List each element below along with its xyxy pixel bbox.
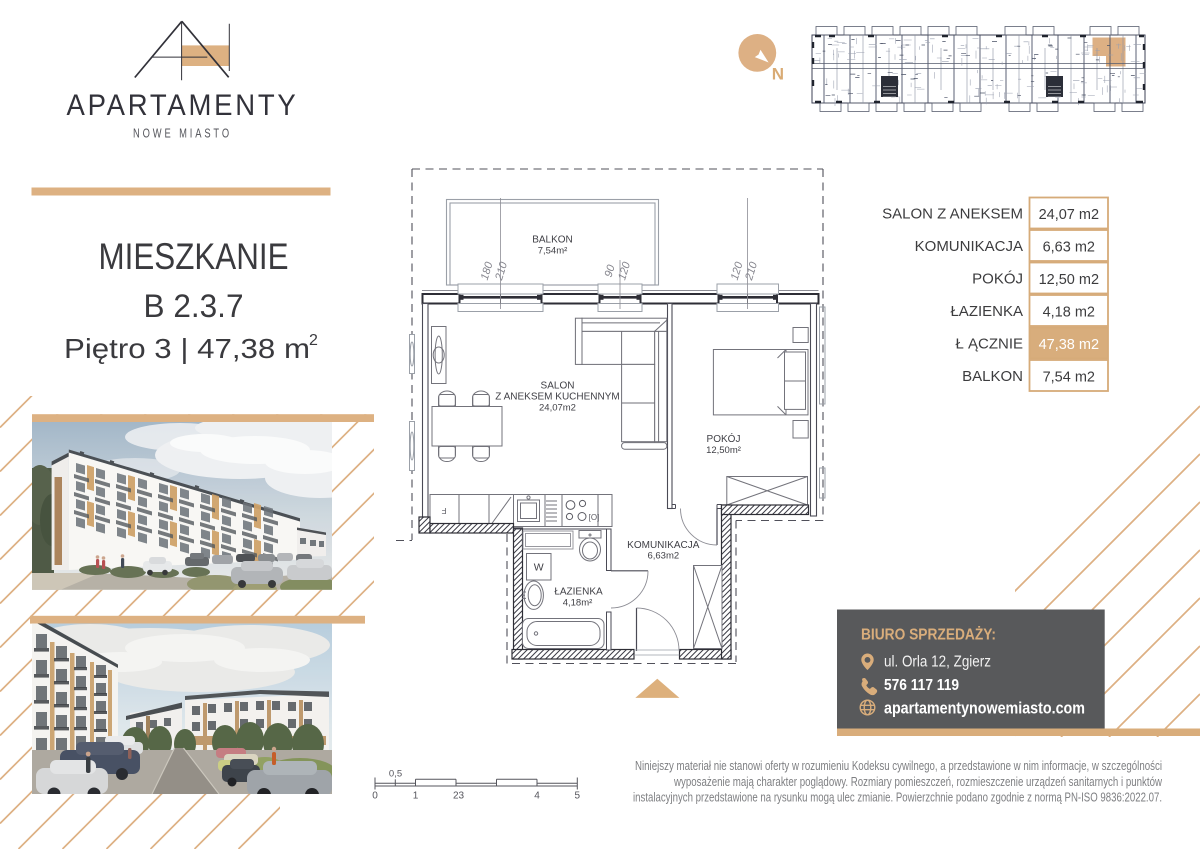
svg-text:12,50m²: 12,50m² xyxy=(706,445,741,456)
svg-text:576 117 119: 576 117 119 xyxy=(884,677,959,694)
svg-text:47,38 m2: 47,38 m2 xyxy=(1039,337,1099,353)
svg-text:0,5: 0,5 xyxy=(389,769,402,780)
svg-text:BALKON: BALKON xyxy=(962,368,1023,385)
svg-text:4: 4 xyxy=(534,791,540,802)
svg-text:Piętro 3 | 47,38 m: Piętro 3 | 47,38 m xyxy=(64,333,310,364)
svg-text:MIESZKANIE: MIESZKANIE xyxy=(99,236,289,277)
svg-text:POKÓJ: POKÓJ xyxy=(972,271,1023,288)
svg-text:SALON: SALON xyxy=(541,381,575,392)
svg-text:ŁAZIENKA: ŁAZIENKA xyxy=(950,303,1023,320)
svg-text:W: W xyxy=(534,562,544,574)
svg-text:ŁAZIENKA: ŁAZIENKA xyxy=(554,587,603,598)
svg-text:12,50 m2: 12,50 m2 xyxy=(1039,272,1099,288)
svg-text:6,63 m2: 6,63 m2 xyxy=(1043,239,1095,255)
svg-text:4,18m²: 4,18m² xyxy=(563,598,593,609)
svg-text:Z ANEKSEM KUCHENNYM: Z ANEKSEM KUCHENNYM xyxy=(495,392,619,403)
svg-text:B 2.3.7: B 2.3.7 xyxy=(144,288,244,324)
svg-text:POKÓJ: POKÓJ xyxy=(707,432,741,445)
svg-text:6,63m2: 6,63m2 xyxy=(647,551,679,562)
svg-text:instalacyjnych przedstawione n: instalacyjnych przedstawione na rysunku … xyxy=(633,790,1162,805)
svg-text:[O]: [O] xyxy=(589,513,600,522)
svg-text:BALKON: BALKON xyxy=(532,235,573,246)
svg-text:wyposażenie mają charakter pog: wyposażenie mają charakter poglądowy. Ro… xyxy=(673,774,1162,789)
svg-text:23: 23 xyxy=(453,791,465,802)
svg-text:SALON Z ANEKSEM: SALON Z ANEKSEM xyxy=(882,206,1023,223)
svg-text:5: 5 xyxy=(575,791,581,802)
svg-text:F: F xyxy=(441,506,446,515)
svg-text:KOMUNIKACJA: KOMUNIKACJA xyxy=(627,540,700,551)
svg-text:Ł ĄCZNIE: Ł ĄCZNIE xyxy=(955,336,1023,353)
svg-text:apartamentynowemiasto.com: apartamentynowemiasto.com xyxy=(884,700,1085,718)
svg-text:ul. Orla 12, Zgierz: ul. Orla 12, Zgierz xyxy=(884,654,991,671)
svg-text:4,18 m2: 4,18 m2 xyxy=(1043,304,1095,320)
svg-text:NOWE MIASTO: NOWE MIASTO xyxy=(133,126,232,141)
svg-text:1: 1 xyxy=(413,791,419,802)
svg-text:2: 2 xyxy=(309,332,318,349)
svg-text:BIURO SPRZEDAŻY:: BIURO SPRZEDAŻY: xyxy=(861,626,996,644)
svg-text:0: 0 xyxy=(372,791,378,802)
svg-text:7,54 m2: 7,54 m2 xyxy=(1043,369,1095,385)
svg-text:N: N xyxy=(772,64,784,83)
svg-text:APARTAMENTY: APARTAMENTY xyxy=(67,89,299,122)
svg-text:24,07m2: 24,07m2 xyxy=(539,403,576,414)
svg-text:7,54m²: 7,54m² xyxy=(538,246,568,257)
svg-text:Niniejszy materiał nie stanowi: Niniejszy materiał nie stanowi oferty w … xyxy=(635,758,1162,773)
svg-text:24,07 m2: 24,07 m2 xyxy=(1039,207,1099,223)
svg-text:KOMUNIKACJA: KOMUNIKACJA xyxy=(915,238,1023,255)
